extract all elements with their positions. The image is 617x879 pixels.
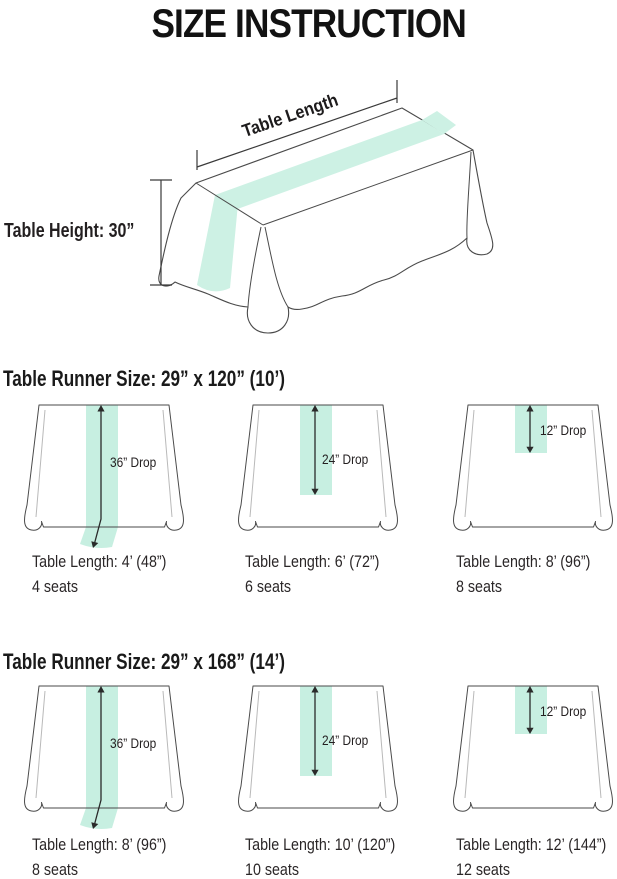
drop-measurement-label: 36” Drop [110, 735, 156, 751]
diagram-168-24drop: 24” Drop [238, 684, 408, 836]
runner-drape [80, 808, 118, 829]
page-title-text: SIZE INSTRUCTION [151, 2, 465, 47]
drop-measurement-label: 36” Drop [110, 454, 156, 470]
table-caption: Table Length: 12’ (144”) 12 seats [456, 832, 606, 879]
diagram-120-24drop: 24” Drop [238, 403, 408, 555]
tablecloth-shape [159, 108, 493, 333]
table-caption: Table Length: 10’ (120”) 10 seats [245, 832, 395, 879]
diagram-168-12drop: 12” Drop [453, 684, 617, 836]
seats-text: 6 seats [245, 574, 379, 599]
table-front-view [238, 684, 398, 836]
table-overview-diagram: Table Length Table Height: 30” [0, 60, 617, 360]
table-front-view [24, 403, 184, 555]
seats-text: 8 seats [456, 574, 590, 599]
drop-measurement-label: 12” Drop [540, 703, 586, 719]
table-length-text: Table Length: 8’ (96”) [456, 549, 590, 574]
table-front-view [24, 684, 184, 836]
table-caption: Table Length: 8’ (96”) 8 seats [456, 549, 590, 599]
diagram-120-12drop: 12” Drop [453, 403, 617, 555]
section-heading-runner-168: Table Runner Size: 29” x 168” (14’) [3, 649, 285, 675]
section-heading-runner-120: Table Runner Size: 29” x 120” (10’) [3, 366, 285, 392]
table-caption: Table Length: 4’ (48”) 4 seats [32, 549, 166, 599]
table-front-view [238, 403, 398, 555]
seats-text: 4 seats [32, 574, 166, 599]
seats-text: 10 seats [245, 857, 395, 879]
table-caption: Table Length: 8’ (96”) 8 seats [32, 832, 166, 879]
table-height-label: Table Height: 30” [4, 220, 134, 243]
drop-measurement-label: 24” Drop [322, 732, 368, 748]
table-front-view [453, 684, 613, 836]
table-length-text: Table Length: 8’ (96”) [32, 832, 166, 857]
seats-text: 12 seats [456, 857, 606, 879]
table-caption: Table Length: 6’ (72”) 6 seats [245, 549, 379, 599]
table-length-label: Table Length [240, 90, 341, 141]
table-front-view [453, 403, 613, 555]
runner-drape [80, 527, 118, 548]
table-length-text: Table Length: 4’ (48”) [32, 549, 166, 574]
diagram-168-36drop: 36” Drop [24, 684, 194, 836]
table-length-text: Table Length: 12’ (144”) [456, 832, 606, 857]
diagram-120-36drop: 36” Drop [24, 403, 194, 555]
drop-measurement-label: 24” Drop [322, 451, 368, 467]
seats-text: 8 seats [32, 857, 166, 879]
page-title: SIZE INSTRUCTION [0, 2, 617, 47]
drop-measurement-label: 12” Drop [540, 422, 586, 438]
table-length-text: Table Length: 10’ (120”) [245, 832, 395, 857]
size-instruction-page: SIZE INSTRUCTION Table Length Tabl [0, 0, 617, 879]
table-length-text: Table Length: 6’ (72”) [245, 549, 379, 574]
runner-stripe [300, 686, 332, 776]
runner-stripe [300, 405, 332, 495]
table-3d-illustration: Table Length [0, 60, 617, 360]
